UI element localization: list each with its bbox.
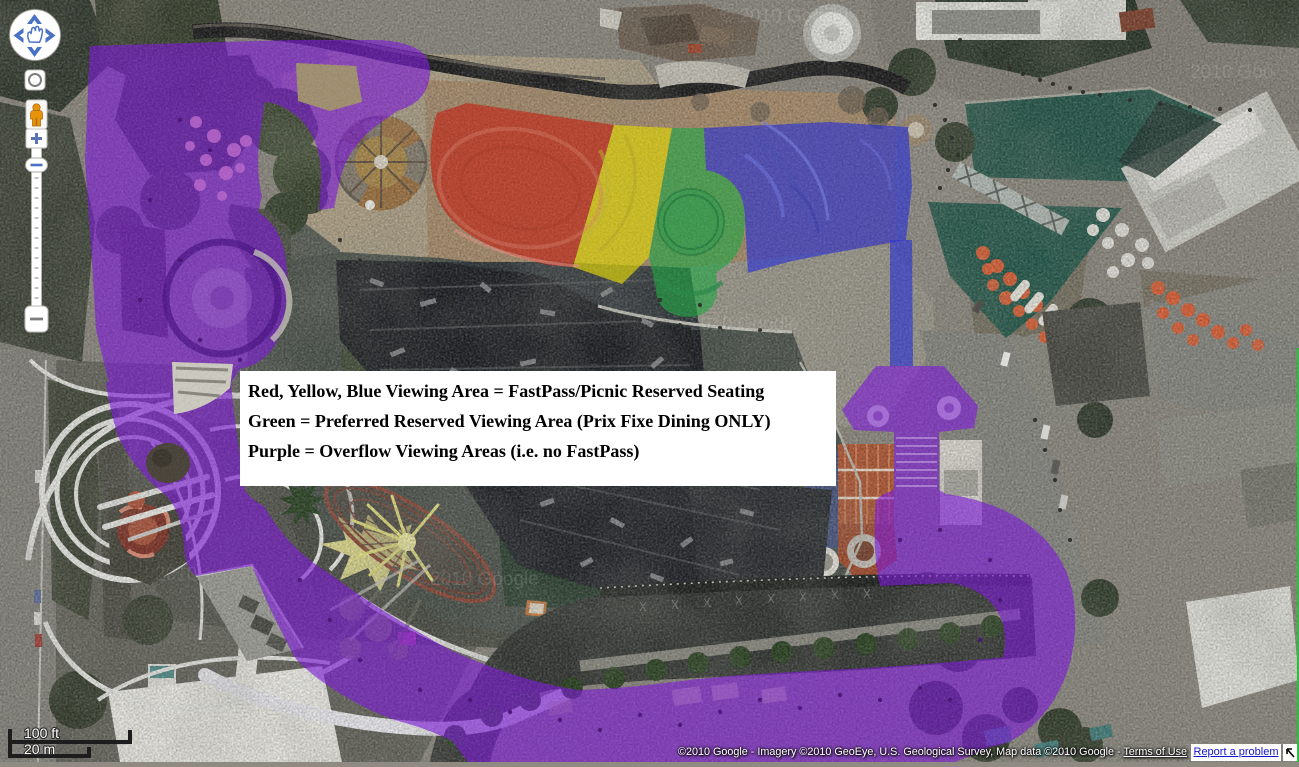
svg-text:100 ft: 100 ft [24, 725, 59, 741]
